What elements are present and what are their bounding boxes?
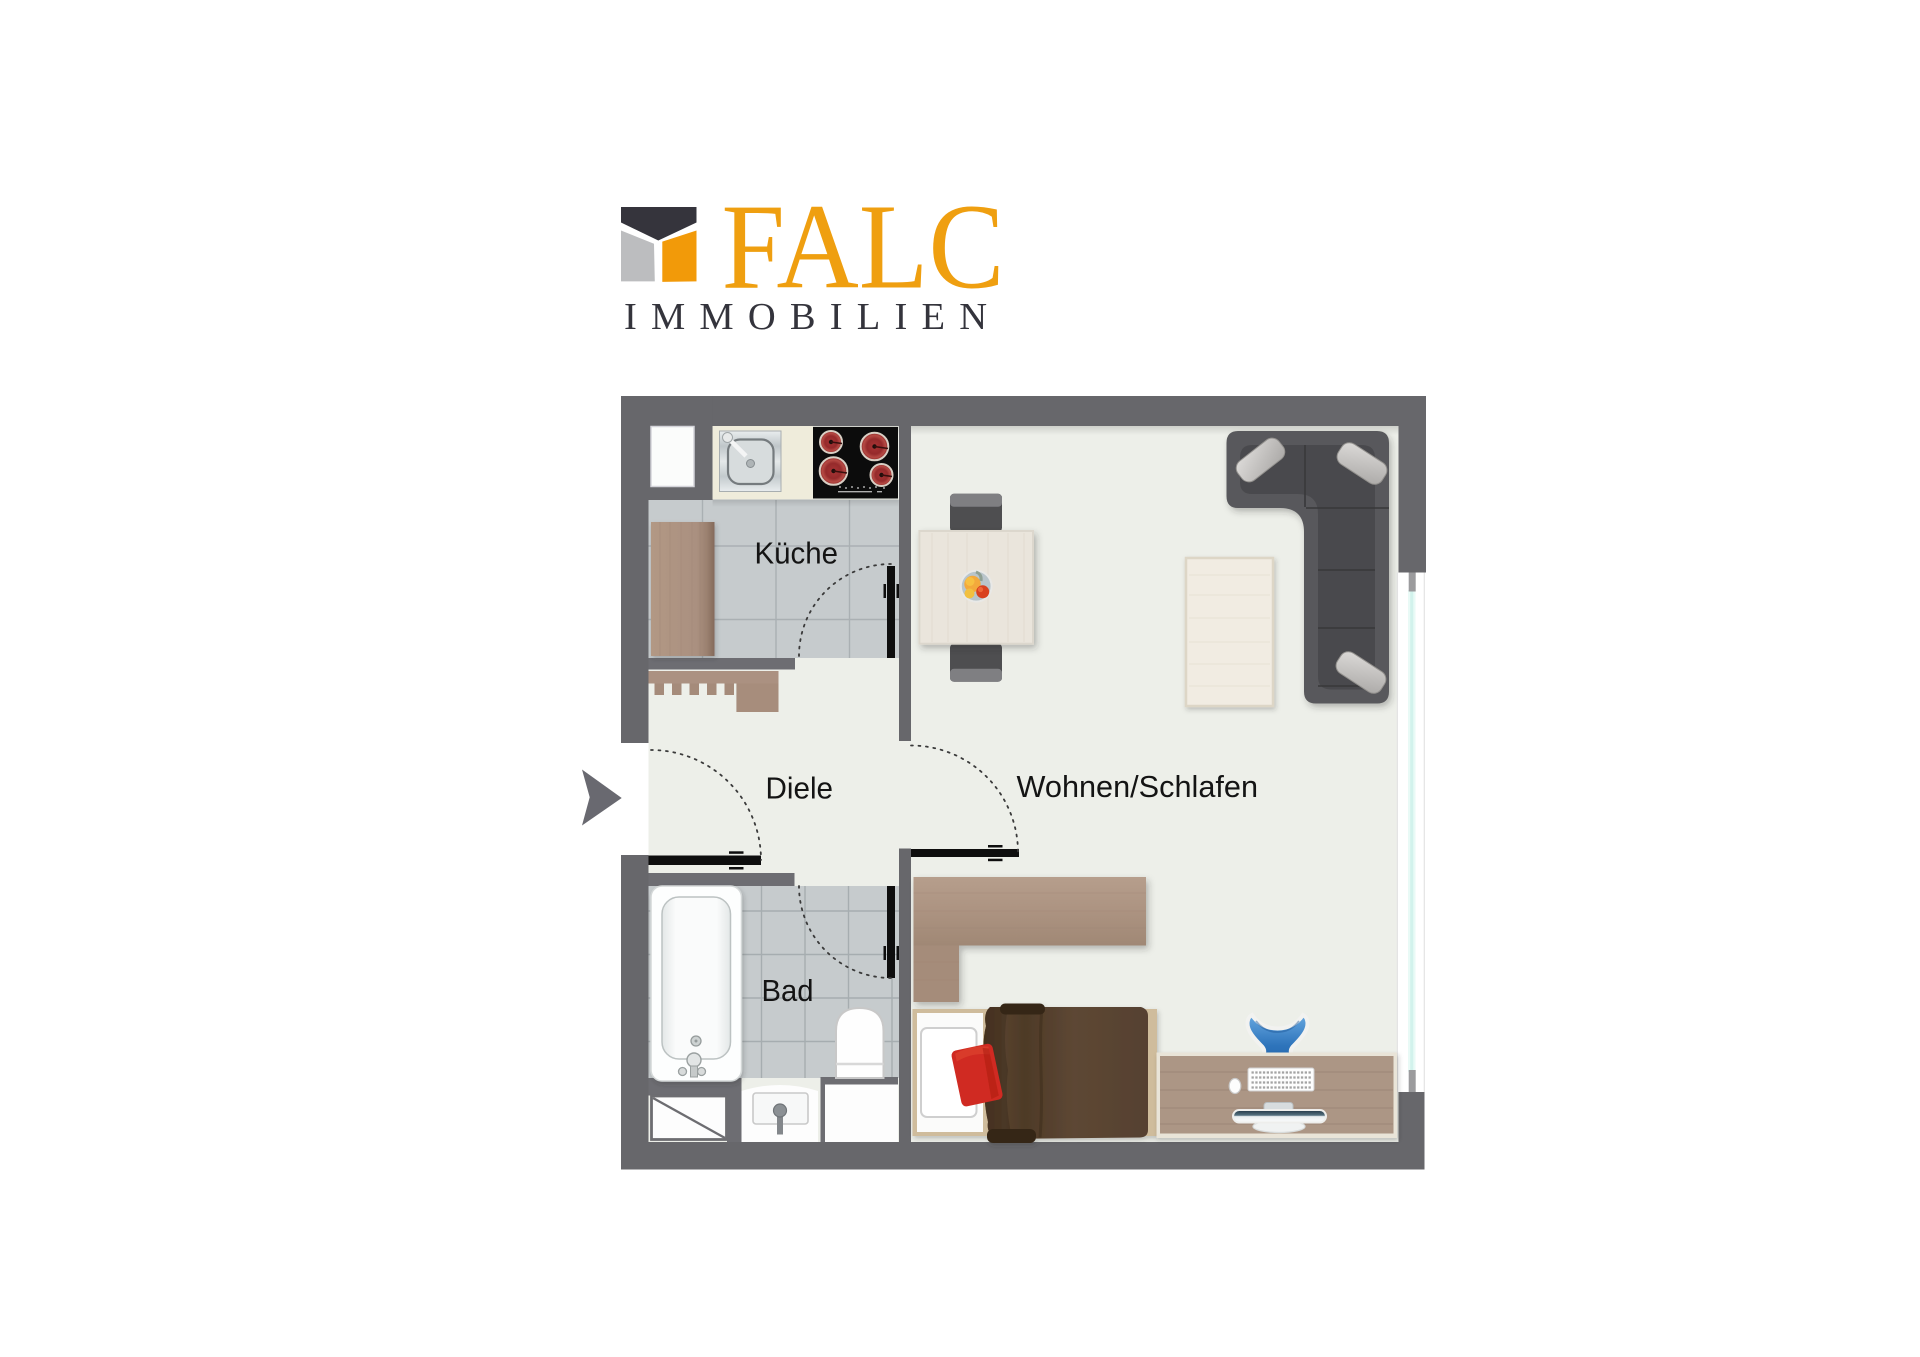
svg-text:Bad: Bad bbox=[762, 974, 814, 1008]
svg-text:IMMOBILIEN: IMMOBILIEN bbox=[624, 296, 987, 338]
svg-text:Diele: Diele bbox=[766, 772, 834, 806]
svg-text:FALC: FALC bbox=[722, 180, 1005, 315]
svg-text:Wohnen/Schlafen: Wohnen/Schlafen bbox=[1017, 769, 1259, 804]
svg-text:Küche: Küche bbox=[755, 537, 839, 571]
